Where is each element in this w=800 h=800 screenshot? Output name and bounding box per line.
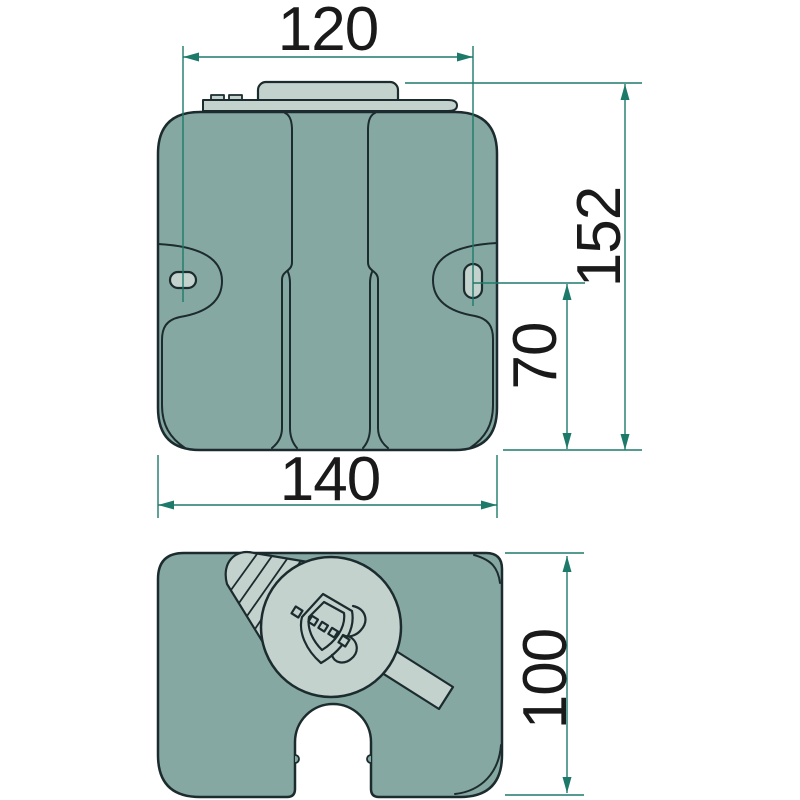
arrowhead [457,53,473,62]
arrowhead [563,777,572,793]
dimension-label-100: 100 [511,629,580,729]
dimension-label-140: 140 [280,445,380,514]
dimension-label-70: 70 [501,323,570,390]
arrowhead [563,433,572,449]
bottom-view [158,552,502,797]
tank-body-front [158,112,497,450]
dimension-label-120: 120 [278,0,378,64]
technical-drawing: 120 152 70 140 [0,0,800,800]
arrowhead [183,53,199,62]
notch-bump-right [367,755,371,763]
arrowhead [158,501,174,510]
notch-bump-left [295,755,299,763]
cap-plate [203,100,457,111]
arrowhead [621,84,630,100]
drawing-canvas: 120 152 70 140 [0,0,800,800]
dimension-label-152: 152 [565,187,634,287]
arrowhead [621,434,630,450]
arrowhead [481,501,497,510]
arrowhead [563,556,572,572]
front-view [158,82,497,450]
washer-pump-body [261,557,401,697]
